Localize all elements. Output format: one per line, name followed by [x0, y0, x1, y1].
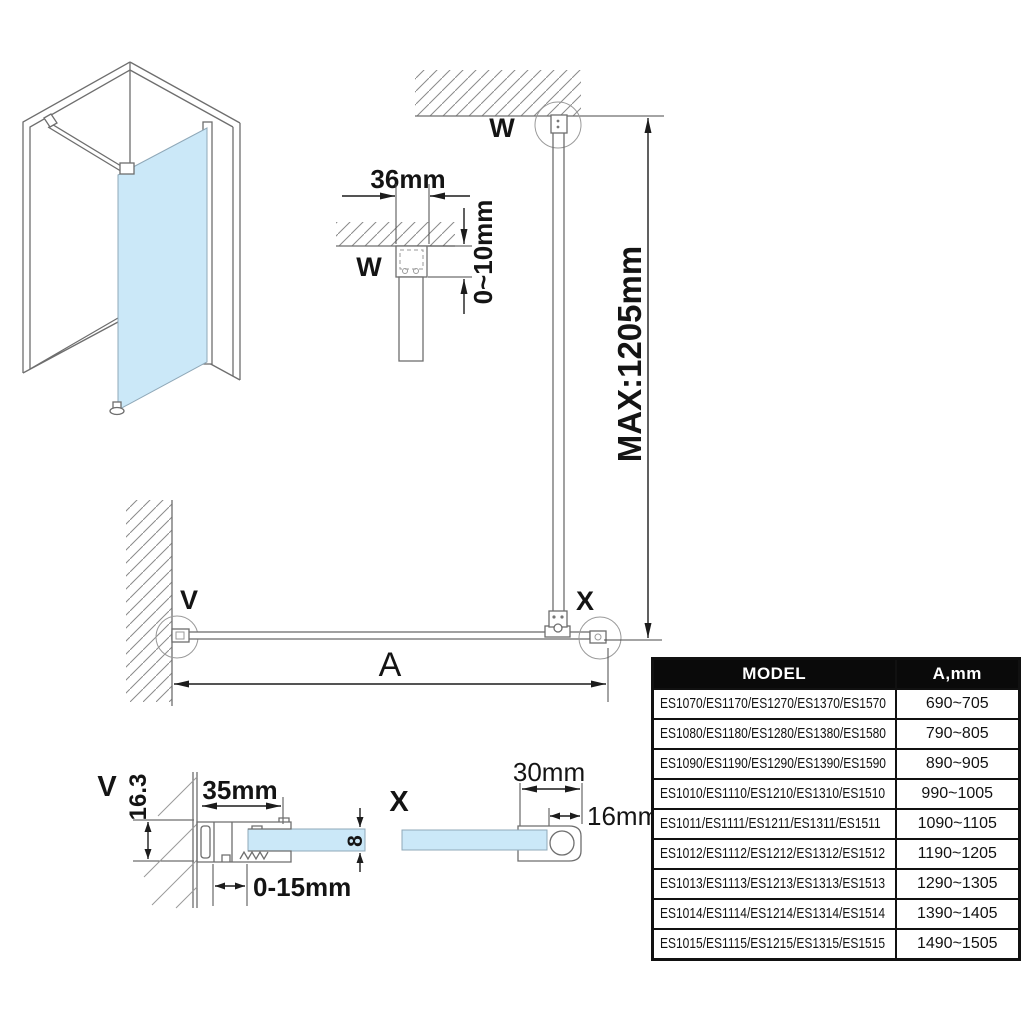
ceiling-hatch: [415, 70, 581, 116]
model-column-header: MODEL: [653, 659, 896, 690]
plan-view: V A: [126, 500, 621, 706]
left-wall-outline: [23, 62, 130, 373]
elevation-w-label: W: [489, 113, 515, 143]
elevation-view: W X MAX:1205mm: [415, 70, 664, 640]
a-value-cell: 990~1005: [896, 779, 1020, 809]
right-wall-outline: [130, 62, 240, 127]
shower-screen-technical-drawing: 36mm W 0~10mm V A W: [0, 0, 1024, 1024]
dim-depth-label: 16.3: [125, 774, 152, 821]
ceiling-bracket: [396, 246, 427, 277]
clamp-spring: [240, 852, 268, 859]
a-value-cell: 1490~1505: [896, 929, 1020, 960]
table-row: ES1012/ES1112/ES1212/ES1312/ES1512 1190~…: [653, 839, 1020, 869]
dim-glass-thickness-label: 8: [344, 835, 367, 847]
table-row: ES1014/ES1114/ES1214/ES1314/ES1514 1390~…: [653, 899, 1020, 929]
model-cell: ES1015/ES1115/ES1215/ES1315/ES1515: [653, 929, 896, 960]
wall-profile-plan: [172, 629, 189, 642]
end-bracket-plan: [590, 631, 606, 643]
table-row: ES1010/ES1110/ES1210/ES1310/ES1510 990~1…: [653, 779, 1020, 809]
plan-v-label: V: [180, 585, 198, 615]
clamp-pivot: [554, 624, 562, 632]
table-header-row: MODEL A,mm: [653, 659, 1020, 690]
model-cell: ES1010/ES1110/ES1210/ES1310/ES1510: [653, 779, 896, 809]
model-cell: ES1080/ES1180/ES1280/ES1380/ES1580: [653, 719, 896, 749]
model-size-table: MODEL A,mm ES1070/ES1170/ES1270/ES1370/E…: [651, 657, 1021, 961]
model-cell: ES1011/ES1111/ES1211/ES1311/ES1511: [653, 809, 896, 839]
a-value-cell: 1390~1405: [896, 899, 1020, 929]
dim-30mm-label: 30mm: [513, 757, 585, 787]
table-row: ES1013/ES1113/ES1213/ES1313/ES1513 1290~…: [653, 869, 1020, 899]
a-value-cell: 890~905: [896, 749, 1020, 779]
dim-36mm-label: 36mm: [370, 164, 445, 194]
detail-v-label: V: [97, 771, 117, 803]
model-cell: ES1014/ES1114/ES1214/ES1314/ES1514: [653, 899, 896, 929]
a-value-cell: 1290~1305: [896, 869, 1020, 899]
detail-x-label: X: [389, 786, 409, 818]
model-cell: ES1070/ES1170/ES1270/ES1370/ES1570: [653, 689, 896, 719]
table-row: ES1015/ES1115/ES1215/ES1315/ES1515 1490~…: [653, 929, 1020, 960]
a-value-cell: 690~705: [896, 689, 1020, 719]
dim-16mm-label: 16mm: [587, 801, 659, 831]
ceiling-bracket-elevation: [551, 115, 567, 133]
isometric-view: [23, 62, 240, 415]
wall-anchor-3d: [44, 114, 57, 127]
detail-x-section: X 30mm 16mm: [389, 757, 659, 861]
support-bar-3d: [48, 123, 126, 173]
dim-a-label: A: [379, 646, 402, 684]
a-value-cell: 1090~1105: [896, 809, 1020, 839]
a-column-header: A,mm: [896, 659, 1020, 690]
model-cell: ES1012/ES1112/ES1212/ES1312/ES1512: [653, 839, 896, 869]
glass-panel-plan: [172, 632, 590, 639]
glass-panel-section-x: [402, 830, 547, 850]
detail-w-callout: 36mm W 0~10mm: [336, 164, 498, 361]
dim-adjustment-label: 0-15mm: [253, 872, 351, 902]
table-row: ES1080/ES1180/ES1280/ES1380/ES1580 790~8…: [653, 719, 1020, 749]
detail-v-section: V 16.3 35mm 8 0-15mm: [97, 771, 367, 908]
wall-hatch: [126, 500, 172, 702]
dim-35mm-label: 35mm: [202, 775, 277, 805]
detail-w-label: W: [356, 252, 382, 282]
model-cell: ES1013/ES1113/ES1213/ES1313/ES1513: [653, 869, 896, 899]
support-bar-section: [399, 277, 423, 361]
dim-max-height-label: MAX:1205mm: [611, 246, 648, 462]
table-row: ES1090/ES1190/ES1290/ES1390/ES1590 890~9…: [653, 749, 1020, 779]
dim-gap-label: 0~10mm: [468, 200, 498, 305]
bar-clamp-3d: [120, 163, 134, 174]
a-value-cell: 1190~1205: [896, 839, 1020, 869]
model-cell: ES1090/ES1190/ES1290/ES1390/ES1590: [653, 749, 896, 779]
bracket-tube: [550, 831, 574, 855]
model-table: MODEL A,mm ES1070/ES1170/ES1270/ES1370/E…: [651, 657, 1021, 961]
a-value-cell: 790~805: [896, 719, 1020, 749]
elevation-x-label: X: [576, 586, 594, 616]
table-row: ES1070/ES1170/ES1270/ES1370/ES1570 690~7…: [653, 689, 1020, 719]
table-row: ES1011/ES1111/ES1211/ES1311/ES1511 1090~…: [653, 809, 1020, 839]
